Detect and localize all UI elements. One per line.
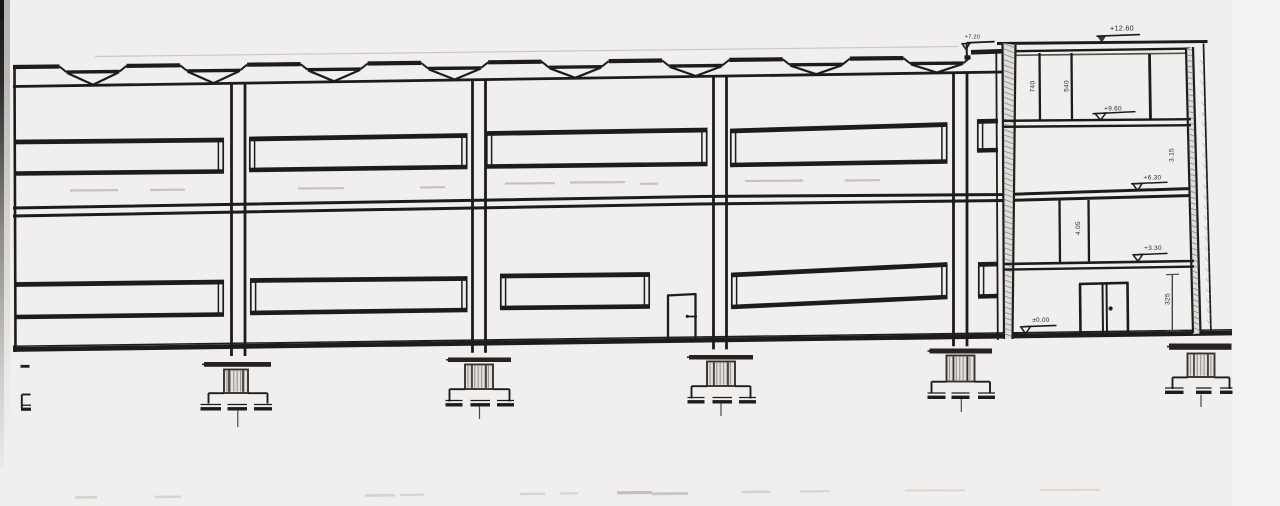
svg-text:+12.60: +12.60 bbox=[1110, 24, 1134, 33]
svg-text:±0.00: ±0.00 bbox=[1032, 317, 1049, 324]
svg-text:+6.30: +6.30 bbox=[1144, 174, 1162, 181]
svg-text:740: 740 bbox=[1030, 81, 1037, 93]
svg-text:3.15: 3.15 bbox=[1169, 148, 1176, 162]
svg-text:+9.60: +9.60 bbox=[1104, 105, 1122, 112]
svg-text:+7.20: +7.20 bbox=[965, 35, 981, 41]
svg-text:540: 540 bbox=[1064, 80, 1071, 92]
svg-text:4.05: 4.05 bbox=[1075, 221, 1082, 235]
svg-text:325: 325 bbox=[1165, 293, 1172, 305]
svg-text:+3.30: +3.30 bbox=[1144, 245, 1162, 252]
